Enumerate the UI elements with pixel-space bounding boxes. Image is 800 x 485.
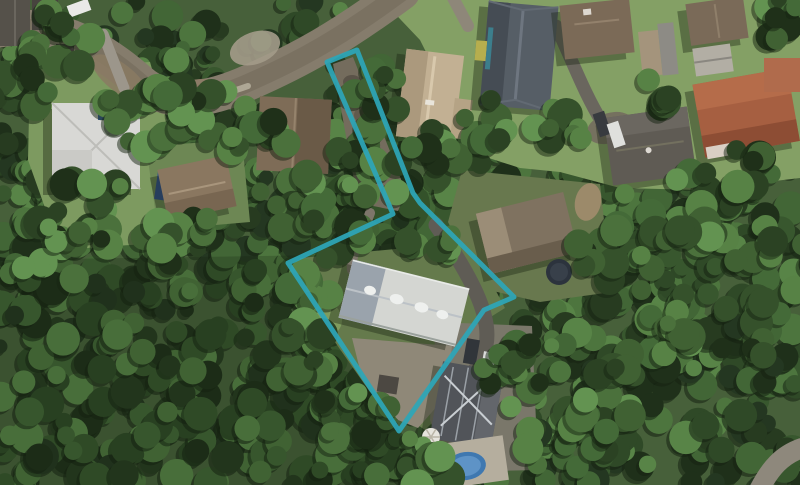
tree-canopy bbox=[541, 119, 559, 137]
tree-canopy bbox=[394, 227, 422, 255]
tree-canopy bbox=[639, 456, 656, 473]
tree-canopy bbox=[488, 128, 511, 151]
tree-canopy bbox=[666, 168, 689, 191]
house-brown-top-right-1 bbox=[559, 0, 634, 60]
tree-canopy bbox=[530, 373, 549, 392]
tree-canopy bbox=[573, 387, 598, 412]
tree-canopy bbox=[606, 359, 624, 377]
tree-canopy bbox=[519, 333, 542, 356]
tree-canopy bbox=[660, 316, 676, 332]
tree-canopy bbox=[614, 400, 646, 432]
tree-canopy bbox=[724, 249, 747, 272]
shed-dark-below-house-part bbox=[377, 375, 399, 395]
tree-canopy bbox=[50, 11, 74, 35]
tree-canopy bbox=[40, 218, 58, 236]
tree-canopy bbox=[259, 170, 273, 184]
tree-canopy bbox=[721, 170, 754, 203]
tree-canopy bbox=[686, 360, 702, 376]
tree-canopy bbox=[765, 7, 786, 28]
tree-canopy bbox=[424, 441, 455, 472]
tree-canopy bbox=[481, 90, 501, 110]
tree-canopy bbox=[251, 183, 269, 201]
tree-canopy bbox=[292, 160, 323, 191]
tree-canopy bbox=[632, 280, 652, 300]
tree-canopy bbox=[69, 221, 92, 244]
tree-canopy bbox=[137, 28, 154, 45]
tree-canopy bbox=[600, 215, 632, 247]
tree-canopy bbox=[267, 195, 286, 214]
tree-canopy bbox=[712, 338, 732, 358]
house-orange-far-right bbox=[764, 58, 800, 92]
tree-canopy bbox=[112, 178, 129, 195]
tree-canopy bbox=[549, 361, 571, 383]
tree-canopy bbox=[307, 351, 324, 368]
tree-canopy bbox=[260, 108, 288, 136]
tree-canopy bbox=[104, 108, 131, 135]
aerial-canvas bbox=[0, 0, 800, 485]
tree-canopy bbox=[12, 256, 35, 279]
tree-canopy bbox=[750, 342, 776, 368]
shed-dark-below-house bbox=[377, 375, 399, 395]
tree-canopy bbox=[708, 437, 734, 463]
tree-canopy bbox=[222, 127, 242, 147]
trampoline-part bbox=[550, 263, 568, 281]
tree-canopy bbox=[402, 431, 418, 447]
tree-canopy bbox=[268, 213, 297, 242]
house-orange-far-right-part bbox=[764, 58, 800, 92]
tree-canopy bbox=[593, 419, 619, 445]
house-bluegray-top-part bbox=[475, 40, 488, 61]
tree-canopy bbox=[153, 81, 183, 111]
tree-canopy bbox=[342, 152, 359, 169]
tree-canopy bbox=[757, 226, 788, 257]
tree-canopy bbox=[743, 151, 764, 172]
tree-canopy bbox=[77, 169, 107, 199]
tree-canopy bbox=[342, 177, 358, 193]
tree-canopy bbox=[348, 383, 367, 402]
trampoline bbox=[546, 259, 572, 285]
tree-canopy bbox=[60, 264, 89, 293]
tree-canopy bbox=[615, 184, 635, 204]
tree-canopy bbox=[570, 127, 592, 149]
tree-canopy bbox=[146, 233, 177, 264]
house-brown-top-right-1-part bbox=[559, 0, 634, 60]
tree-canopy bbox=[376, 66, 394, 84]
tree-canopy bbox=[163, 47, 189, 73]
tree-canopy bbox=[637, 68, 660, 91]
tree-canopy bbox=[321, 423, 339, 441]
tree-canopy bbox=[93, 230, 110, 247]
tree-canopy bbox=[63, 50, 94, 81]
aerial-map-view[interactable] bbox=[0, 0, 800, 485]
tree-canopy bbox=[314, 390, 335, 411]
tree-canopy bbox=[544, 338, 559, 353]
tree-canopy bbox=[456, 109, 474, 127]
tree-canopy bbox=[205, 46, 220, 61]
tree-canopy bbox=[656, 85, 682, 111]
tree-canopy bbox=[564, 229, 593, 258]
tree-canopy bbox=[692, 412, 720, 440]
tree-canopy bbox=[697, 283, 718, 304]
tree-canopy bbox=[725, 399, 758, 432]
tree-canopy bbox=[632, 246, 651, 265]
tree-canopy bbox=[196, 208, 218, 230]
tree-canopy bbox=[748, 287, 779, 318]
shed-gray-top-right bbox=[692, 43, 734, 76]
house-brown-top-right-2 bbox=[685, 0, 748, 46]
tree-canopy bbox=[714, 296, 739, 321]
tree-canopy bbox=[281, 318, 297, 334]
tree-canopy bbox=[2, 46, 16, 60]
tree-canopy bbox=[500, 396, 521, 417]
tree-canopy bbox=[100, 90, 119, 109]
tree-canopy bbox=[401, 136, 423, 158]
house-brown-top-right-1-part bbox=[583, 9, 592, 16]
tree-canopy bbox=[303, 209, 324, 230]
tree-canopy bbox=[512, 433, 543, 464]
tree-canopy bbox=[695, 163, 716, 184]
tree-canopy bbox=[111, 2, 133, 24]
tree-canopy bbox=[37, 82, 57, 102]
tree-canopy bbox=[665, 215, 695, 245]
